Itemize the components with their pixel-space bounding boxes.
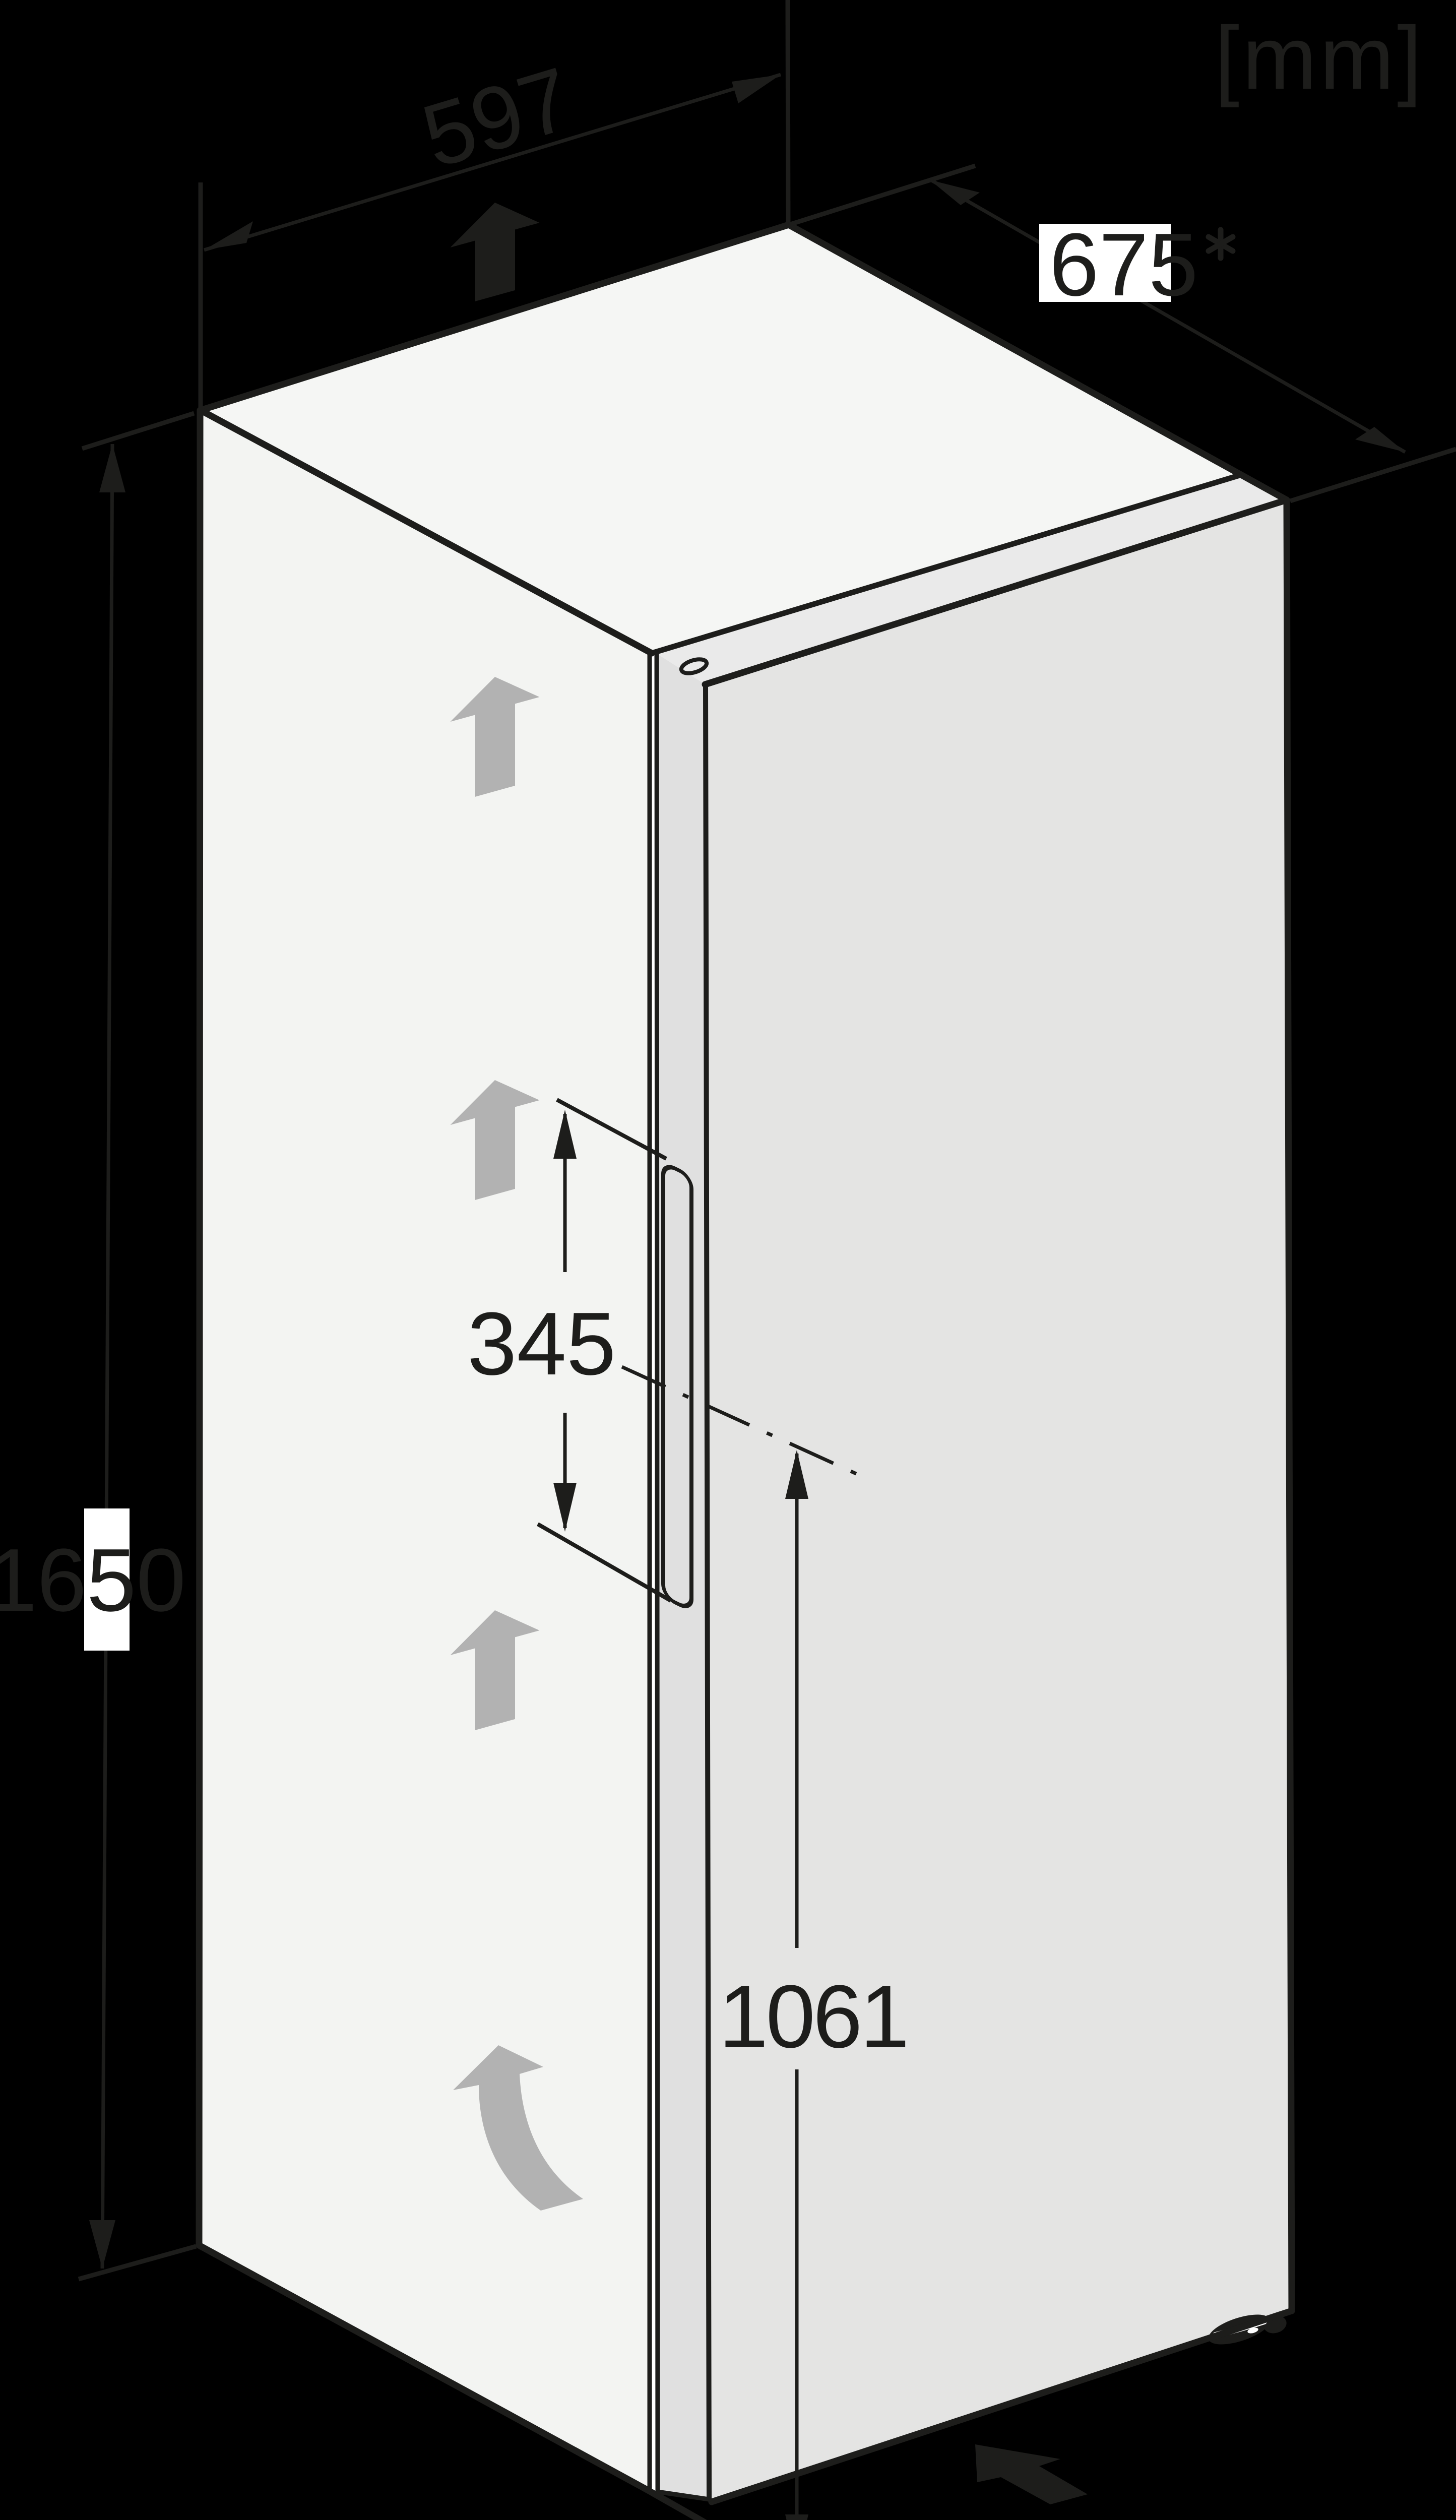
svg-text:[mm]: [mm] (1215, 8, 1425, 108)
svg-text:1061: 1061 (719, 1967, 907, 2066)
svg-text:675: 675 (1049, 215, 1198, 314)
svg-text:345: 345 (467, 1294, 616, 1394)
svg-text:1650: 1650 (0, 1530, 186, 1630)
